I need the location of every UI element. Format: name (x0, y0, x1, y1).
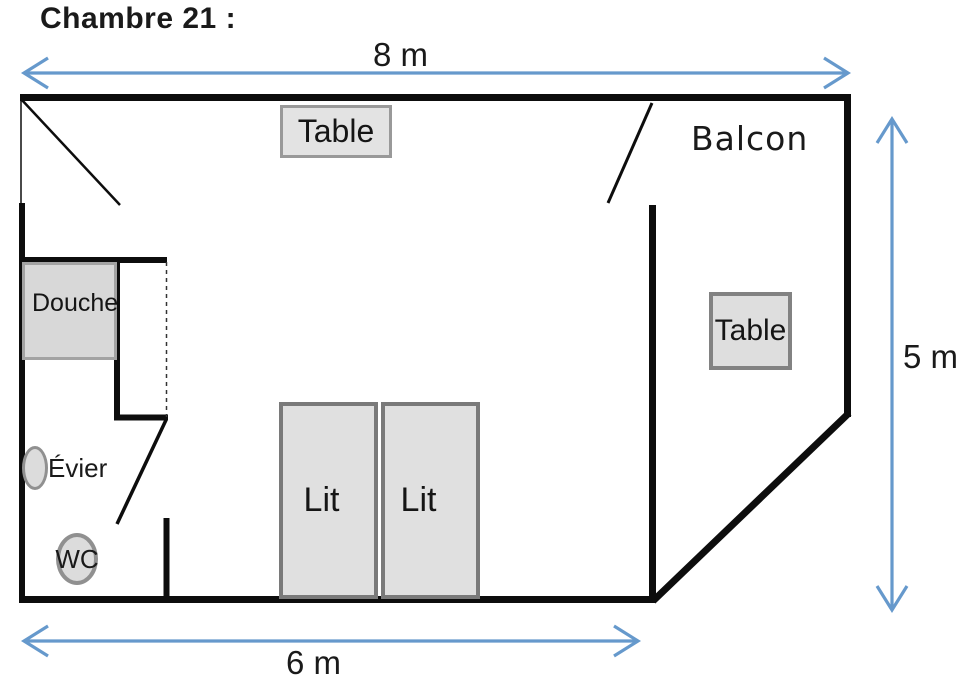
table-balcony-label: Table (715, 314, 787, 348)
bed-right: Lit (381, 402, 480, 599)
width-arrow-8m (24, 58, 848, 88)
bathroom-door-swing (117, 420, 166, 524)
wall-diagonal-corner (653, 413, 849, 601)
page-title: Chambre 21 : (40, 4, 236, 34)
balcony-door-swing (608, 103, 652, 203)
dimension-label-top: 8 m (373, 38, 428, 71)
sink-oval (22, 446, 48, 490)
table-top: Table (280, 105, 392, 158)
sink-label: Évier (48, 455, 107, 481)
dimension-label-bottom: 6 m (286, 646, 341, 679)
floor-plan: Chambre 21 : 8 m 5 m 6 m Balcon Table Ta… (0, 0, 966, 679)
table-top-label: Table (298, 113, 375, 150)
shower-label: Douche (25, 265, 118, 318)
shower: Douche (22, 262, 117, 360)
toilet-oval: WC (56, 533, 98, 585)
bed-right-label: Lit (401, 481, 437, 520)
bed-left: Lit (279, 402, 378, 599)
dimension-label-right: 5 m (903, 340, 958, 373)
balcony-label: Balcon (691, 122, 808, 155)
table-balcony: Table (709, 292, 792, 370)
floor-plan-linework (0, 0, 966, 679)
entrance-door-swing (21, 99, 120, 205)
bed-left-label: Lit (304, 481, 340, 520)
toilet-label: WC (55, 544, 98, 575)
